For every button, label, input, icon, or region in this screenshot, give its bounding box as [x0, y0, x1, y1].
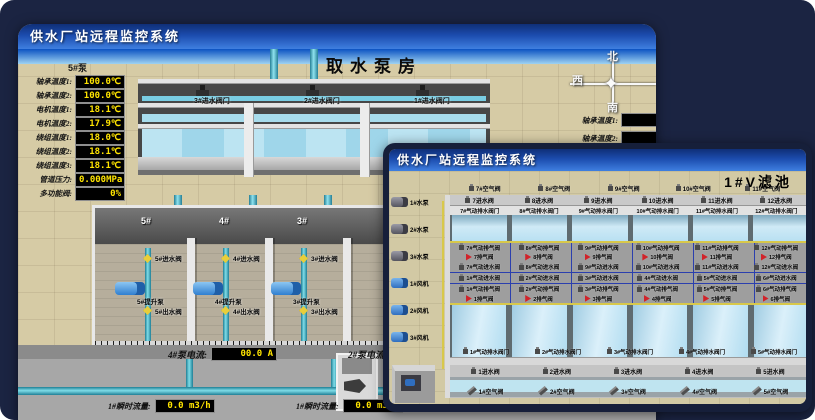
- valve-label: 10进水阀: [649, 196, 674, 205]
- inlet-valve-icon[interactable]: [584, 198, 589, 203]
- valve-label: 4#气动排水阀门: [686, 348, 725, 356]
- pump-icon: [391, 224, 408, 234]
- air-valve-row-bottom: 1#空气阀2#空气阀3#空气阀4#空气阀5#空气阀: [450, 386, 806, 397]
- device-blower[interactable]: 1#风机: [391, 278, 429, 288]
- pneumatic-inlet-valve-icon[interactable]: [697, 276, 702, 281]
- valve-label: 2#空气阀: [550, 387, 575, 396]
- valve-label: 1排气阀: [474, 295, 494, 303]
- valve-item: 5排气阀: [687, 294, 746, 303]
- lift-pump-icon[interactable]: [115, 282, 145, 295]
- drain-valve-icon[interactable]: [535, 349, 540, 354]
- inlet-valve-icon[interactable]: [685, 369, 690, 374]
- valve-item: 10#空气阀: [659, 182, 729, 194]
- valve-item: 2进水阀: [521, 365, 592, 377]
- valve-label: 10#气动排气阀: [643, 244, 680, 252]
- valve-item: 7#气动排水阀门: [450, 206, 509, 215]
- pneumatic-exhaust-valve-icon[interactable]: [637, 287, 642, 292]
- basin-wall: [138, 108, 490, 124]
- bay-number: 4#: [219, 216, 229, 226]
- pneumatic-inlet-valve-icon[interactable]: [637, 276, 642, 281]
- valve-item: 1#气动排气阀: [450, 284, 509, 294]
- valve-item: 2#气动进水阀: [509, 273, 568, 283]
- valve-item: 8#气动排气阀: [509, 243, 568, 252]
- exhaust-valve-icon[interactable]: [702, 254, 708, 261]
- blower-icon: [391, 278, 408, 288]
- valve-item: 1进水阀: [450, 365, 521, 377]
- valve-item: 10进水阀: [628, 195, 687, 206]
- filter-scene: 1#V滤池 7#空气阀8#空气阀9#空气阀10#空气阀11#空气阀12#空气阀 …: [389, 171, 806, 404]
- drain-ledge-top: 7#气动排水阀门8#气动排水阀门9#气动排水阀门10#气动排水阀门11#气动排水…: [450, 206, 806, 215]
- pump-data-row: 绕组温度1:18.0℃: [26, 131, 125, 144]
- valve-item: 10#气动排水阀门: [628, 206, 687, 215]
- valve-item: 9#空气阀: [589, 182, 659, 194]
- drain-valve-row-top: 7#气动排水阀门8#气动排水阀门9#气动排水阀门10#气动排水阀门11#气动排水…: [450, 206, 806, 215]
- pneumatic-inlet-valve-icon[interactable]: [519, 265, 524, 270]
- valve-label: 11进水阀: [708, 196, 732, 205]
- valve-item: 7#空气阀: [450, 182, 520, 194]
- intake-valve: 2#进水阀门: [304, 85, 340, 106]
- valve-item: 11排气阀: [687, 252, 746, 262]
- valve-item: 6#气动进水阀: [747, 273, 806, 283]
- air-valve-icon[interactable]: [538, 186, 543, 191]
- valve-item: 1排气阀: [450, 294, 509, 303]
- pump-data-row: 电机温度2:17.9℃: [26, 117, 125, 130]
- inlet-valve-icon[interactable]: [701, 198, 706, 203]
- pump-data-row: 轴承温度2:100.0℃: [26, 89, 125, 102]
- exhaust-row-top: 7排气阀8排气阀9排气阀10排气阀11排气阀12排气阀: [450, 252, 806, 262]
- inlet-valve-icon[interactable]: [543, 369, 548, 374]
- bay-divider: [343, 238, 351, 348]
- pump-data-row: 多功能阀:0%: [26, 187, 125, 200]
- valve-label: 12#气动进水阀: [761, 263, 798, 271]
- pump-bay: 4#进水阀4#提升泵4#出水阀: [189, 248, 261, 343]
- valve-item: 3#气动进水阀: [569, 273, 628, 283]
- air-valve-icon[interactable]: [539, 387, 548, 395]
- field-label: 2#泵电流:: [348, 348, 387, 361]
- valve-label: 8#空气阀: [545, 184, 570, 193]
- intake-valve: 3#进水阀门: [194, 85, 230, 106]
- valve-label: 1#气动排水阀门: [470, 348, 509, 356]
- valve-label: 3进水阀: [621, 367, 642, 376]
- valve-item: 8#气动排水阀门: [509, 206, 568, 215]
- pneu-exhaust-row-top: 7#气动排气阀8#气动排气阀9#气动排气阀10#气动排气阀11#气动排气阀12#…: [450, 241, 806, 252]
- valve-label: 12排气阀: [769, 253, 792, 261]
- scene-title-intake: 取水泵房: [326, 52, 422, 77]
- valve-label: 10#气动进水阀: [643, 263, 680, 271]
- compass-star-icon: ✦: [603, 73, 619, 96]
- valve-item: 6#气动排气阀: [747, 284, 806, 294]
- valve-label: 2排气阀: [533, 295, 553, 303]
- filter-cell: [753, 215, 806, 241]
- window-filter-pool: 供水厂站远程监控系统 1#V滤池 7#空气阀8#空气阀9#空气阀10#空气阀11…: [383, 143, 812, 412]
- valve-label: 9#气动排气阀: [585, 244, 619, 252]
- filter-cells-top: [450, 215, 806, 241]
- valve-item: 4#空气阀: [664, 386, 735, 397]
- valve-label: 8进水阀: [532, 196, 553, 205]
- intake-valve-icon[interactable]: [420, 85, 425, 96]
- device-label: 1#风机: [410, 279, 429, 288]
- filter-cell: [633, 215, 688, 241]
- pneumatic-inlet-valve-icon[interactable]: [578, 276, 583, 281]
- valve-item: 12#气动排气阀: [747, 243, 806, 252]
- valve-item: 11#气动排水阀门: [687, 206, 746, 215]
- front-window-titlebar[interactable]: 供水厂站远程监控系统: [389, 149, 806, 171]
- valve-label: 4#气动进水阀: [644, 274, 678, 282]
- exhaust-valve-icon[interactable]: [585, 254, 591, 261]
- valve-item: 4排气阀: [628, 294, 687, 303]
- intake-valve: 1#进水阀门: [414, 85, 450, 106]
- exhaust-valve-icon[interactable]: [585, 295, 591, 302]
- valve-item: 4#气动排气阀: [628, 284, 687, 294]
- device-label: 1#水泵: [410, 198, 429, 207]
- air-valve-icon[interactable]: [753, 387, 762, 395]
- pneumatic-exhaust-valve-icon[interactable]: [697, 287, 702, 292]
- field-label: 轴承温度1:: [26, 76, 72, 87]
- filter-cell: [512, 215, 567, 241]
- inlet-valve-icon[interactable]: [525, 198, 530, 203]
- pneumatic-exhaust-valve-icon[interactable]: [459, 287, 464, 292]
- pneumatic-inlet-valve-icon[interactable]: [695, 265, 700, 270]
- pneu-exhaust-row-bottom: 1#气动排气阀2#气动排气阀3#气动排气阀4#气动排气阀5#气动排气阀6#气动排…: [450, 284, 806, 294]
- scada-desktop: 供水厂站远程监控系统 取水泵房 5#泵 轴承温度1:100.0℃轴承温度2:10…: [0, 0, 815, 420]
- exhaust-valve-icon[interactable]: [525, 295, 531, 302]
- front-window-body: 供水厂站远程监控系统 1#V滤池 7#空气阀8#空气阀9#空气阀10#空气阀11…: [389, 149, 806, 404]
- valve-label: 8#气动排气阀: [526, 244, 560, 252]
- bay-inlet-label: 3#进水阀: [311, 253, 338, 263]
- air-valve-icon[interactable]: [468, 387, 477, 395]
- valve-item: 6排气阀: [747, 294, 806, 303]
- valve-item: 10排气阀: [628, 252, 687, 262]
- valve-item: 7#气动排气阀: [450, 243, 509, 252]
- valve-label: 9进水阀: [591, 196, 612, 205]
- bay-outlet-label: 4#出水阀: [233, 306, 260, 316]
- valve-item: 10#气动进水阀: [628, 262, 687, 272]
- valve-label: 12进水阀: [767, 196, 792, 205]
- valve-label: 9排气阀: [593, 253, 613, 261]
- inlet-wall-top: 7进水阀8进水阀9进水阀10进水阀11进水阀12进水阀: [450, 195, 806, 206]
- pneumatic-inlet-valve-icon[interactable]: [578, 265, 583, 270]
- pneumatic-exhaust-valve-icon[interactable]: [578, 287, 583, 292]
- valve-item: 9进水阀: [569, 195, 628, 206]
- intake-valve-icon[interactable]: [310, 85, 315, 96]
- valve-item: 2#气动排水阀门: [522, 347, 594, 356]
- drain-valve-icon[interactable]: [679, 349, 684, 354]
- valve-item: 3排气阀: [569, 294, 628, 303]
- pneumatic-inlet-valve-icon[interactable]: [459, 276, 464, 281]
- lift-pump-icon[interactable]: [193, 282, 223, 295]
- pump-icon: [391, 251, 408, 261]
- pump5-caption: 5#泵: [68, 61, 87, 74]
- front-window-title: 供水厂站远程监控系统: [397, 153, 537, 167]
- valve-label: 9#气动进水阀: [585, 263, 619, 271]
- exhaust-valve-icon[interactable]: [761, 254, 767, 261]
- bay-number: 5#: [141, 216, 151, 226]
- pneumatic-exhaust-valve-icon[interactable]: [459, 245, 464, 250]
- valve-label: 9#空气阀: [615, 184, 640, 193]
- device-blower[interactable]: 2#风机: [391, 305, 429, 315]
- device-blower[interactable]: 3#风机: [391, 332, 429, 342]
- valve-item: 4进水阀: [664, 365, 735, 377]
- valve-label: 6#气动排气阀: [763, 285, 797, 293]
- intake-valve-label: 2#进水阀门: [304, 96, 340, 106]
- valve-item: 1#气动进水阀: [450, 273, 509, 283]
- field-label: 4#泵电流:: [168, 348, 207, 361]
- pneumatic-inlet-valve-icon[interactable]: [519, 276, 524, 281]
- device-label: 3#风机: [410, 333, 429, 342]
- valve-label: 7#气动排水阀门: [460, 207, 499, 215]
- field-label: 轴承温度2:: [574, 133, 618, 144]
- basin-divider: [360, 103, 369, 177]
- valve-item: 12#气动排水阀门: [747, 206, 806, 215]
- drain-valve-icon[interactable]: [751, 349, 756, 354]
- field-label: 管道压力:: [26, 174, 72, 185]
- basin-divider: [244, 103, 253, 177]
- valve-label: 3排气阀: [593, 295, 613, 303]
- inlet-valve-icon[interactable]: [614, 369, 619, 374]
- inlet-valve-icon[interactable]: [465, 198, 470, 203]
- valve-label: 11#气动排水阀门: [696, 207, 738, 215]
- valve-item: 12排气阀: [747, 252, 806, 262]
- field-value: 17.9℃: [75, 117, 125, 131]
- pneumatic-inlet-valve-icon[interactable]: [636, 265, 641, 270]
- valve-label: 8排气阀: [533, 253, 553, 261]
- pneumatic-exhaust-valve-icon[interactable]: [519, 287, 524, 292]
- valve-item: 2#气动排气阀: [509, 284, 568, 294]
- valve-label: 4进水阀: [692, 367, 713, 376]
- bay-number: 3#: [297, 216, 307, 226]
- back-window-titlebar[interactable]: 供水厂站远程监控系统: [18, 24, 656, 49]
- drain-valve-icon[interactable]: [463, 349, 468, 354]
- pump-bay: 5#进水阀5#提升泵5#出水阀: [111, 248, 183, 343]
- field-value: 00.0 A: [211, 347, 277, 361]
- pump-data-row: 轴承温度1:100.0℃: [26, 75, 125, 88]
- valve-label: 3#空气阀: [621, 387, 646, 396]
- air-valve-icon[interactable]: [608, 186, 613, 191]
- pneumatic-inlet-valve-icon[interactable]: [756, 276, 761, 281]
- field-value: 0%: [75, 187, 125, 201]
- filter-cells-bottom: 1#气动排水阀门2#气动排水阀门3#气动排水阀门4#气动排水阀门5#气动排水阀门: [450, 305, 806, 357]
- exhaust-valve-icon[interactable]: [763, 295, 769, 302]
- field-label: 电机温度1:: [26, 104, 72, 115]
- valve-label: 3#气动进水阀: [585, 274, 619, 282]
- field-value: 18.1℃: [75, 103, 125, 117]
- valve-item: 12#气动进水阀: [747, 262, 806, 272]
- compass-north: 北: [607, 49, 618, 64]
- valve-label: 6#气动进水阀: [763, 274, 797, 282]
- pump-data-row: 电机温度1:18.1℃: [26, 103, 125, 116]
- valve-label: 8#气动进水阀: [526, 263, 560, 271]
- valve-label: 2#气动排水阀门: [542, 348, 581, 356]
- valve-label: 7排气阀: [474, 253, 494, 261]
- filter-platform: 7进水阀8进水阀9进水阀10进水阀11进水阀12进水阀 7#气动排水阀门8#气动…: [445, 195, 806, 398]
- drain-valve-row-bottom: 1#气动排水阀门2#气动排水阀门3#气动排水阀门4#气动排水阀门5#气动排水阀门: [450, 347, 806, 356]
- valve-item: 5进水阀: [735, 365, 806, 377]
- valve-label: 10排气阀: [650, 253, 673, 261]
- valve-label: 3#气动排气阀: [585, 285, 619, 293]
- valve-label: 11排气阀: [710, 253, 732, 261]
- field-label: 多功能阀:: [26, 188, 72, 199]
- device-label: 2#水泵: [410, 225, 429, 234]
- pneumatic-inlet-valve-icon[interactable]: [459, 265, 464, 270]
- valve-label: 12#气动排水阀门: [755, 207, 797, 215]
- valve-item: 1#气动排水阀门: [450, 347, 522, 356]
- exhaust-valve-icon[interactable]: [642, 254, 648, 261]
- valve-label: 1进水阀: [478, 367, 499, 376]
- blower-house[interactable]: [392, 365, 435, 403]
- field-label: 轴承温度1:: [574, 115, 618, 126]
- valve-label: 5进水阀: [763, 367, 784, 376]
- valve-label: 7#气动排气阀: [466, 244, 500, 252]
- valve-item: 12#空气阀: [798, 182, 807, 194]
- field-value: 0.000MPa: [75, 173, 125, 187]
- field-value: 18.1℃: [75, 145, 125, 159]
- valve-label: 10#空气阀: [683, 184, 711, 193]
- valve-item: 9#气动排气阀: [569, 243, 628, 252]
- valve-label: 10#气动排水阀门: [637, 207, 679, 215]
- exhaust-row-bottom: 1排气阀2排气阀3排气阀4排气阀5排气阀6排气阀: [450, 294, 806, 305]
- valve-item: 5#气动进水阀: [687, 273, 746, 283]
- valve-item: 4#气动排水阀门: [666, 347, 738, 356]
- field-label: 1#瞬时流量:: [108, 401, 151, 412]
- field-label: 绕组温度1:: [26, 132, 72, 143]
- valve-item: 3#空气阀: [592, 386, 663, 397]
- valve-item: 12进水阀: [747, 195, 806, 206]
- device-wash-pump[interactable]: 2#水泵: [391, 224, 429, 234]
- blower-icon: [391, 332, 408, 342]
- pneumatic-exhaust-valve-icon[interactable]: [695, 245, 700, 250]
- valve-item: 4#气动进水阀: [628, 273, 687, 283]
- air-valve-icon[interactable]: [469, 186, 474, 191]
- pneumatic-exhaust-valve-icon[interactable]: [636, 245, 641, 250]
- bay-inlet-label: 4#进水阀: [233, 253, 260, 263]
- valve-item: 3#气动排水阀门: [594, 347, 666, 356]
- bay-pump-label: 3#提升泵: [293, 296, 320, 306]
- air-valve-icon[interactable]: [676, 186, 681, 191]
- filter-cell: [452, 215, 507, 241]
- valve-item: 8排气阀: [509, 252, 568, 262]
- intake-valve-icon[interactable]: [200, 85, 205, 96]
- inlet-valve-icon[interactable]: [760, 198, 765, 203]
- valve-item: 2#空气阀: [521, 386, 592, 397]
- pneumatic-inlet-valve-icon[interactable]: [754, 265, 759, 270]
- flow-readout: 1#瞬时流量: 0.0 m3/h: [108, 399, 215, 413]
- device-wash-pump[interactable]: 3#水泵: [391, 251, 429, 261]
- bay-inlet-label: 5#进水阀: [155, 253, 182, 263]
- valve-item: 5#气动排水阀门: [738, 347, 806, 356]
- valve-item: 7#气动进水阀: [450, 262, 509, 272]
- valve-label: 5#气动进水阀: [704, 274, 738, 282]
- field-label: 绕组温度3:: [26, 160, 72, 171]
- intake-valve-label: 1#进水阀门: [414, 96, 450, 106]
- lift-pump-icon[interactable]: [271, 282, 301, 295]
- valve-label: 5#气动排气阀: [704, 285, 738, 293]
- valve-label: 3#气动排水阀门: [614, 348, 653, 356]
- front-ledge: [450, 357, 806, 365]
- valve-label: 1#气动排气阀: [466, 285, 500, 293]
- field-value: 100.0℃: [75, 89, 125, 103]
- pump-data-row: 绕组温度3:18.1℃: [26, 159, 125, 172]
- inlet-valve-icon[interactable]: [471, 369, 476, 374]
- valve-label: 12#气动排气阀: [761, 244, 798, 252]
- valve-label: 2进水阀: [550, 367, 571, 376]
- filter-cell: [572, 215, 627, 241]
- pump-data-row: 绕组温度2:18.1℃: [26, 145, 125, 158]
- pump-bay: 3#进水阀3#提升泵3#出水阀: [267, 248, 339, 343]
- valve-item: 11#气动进水阀: [687, 262, 746, 272]
- exhaust-valve-icon[interactable]: [466, 254, 472, 261]
- outer-channel: 1#空气阀2#空气阀3#空气阀4#空气阀5#空气阀: [450, 377, 806, 397]
- valve-item: 2排气阀: [509, 294, 568, 303]
- blower-icon: [391, 305, 408, 315]
- pipe-gallery: 7#气动排气阀8#气动排气阀9#气动排气阀10#气动排气阀11#气动排气阀12#…: [450, 241, 806, 305]
- current-readout: 4#泵电流: 00.0 A: [168, 347, 277, 361]
- inlet-wall-bottom: 1进水阀2进水阀3进水阀4进水阀5进水阀: [450, 365, 806, 377]
- pneumatic-exhaust-valve-icon[interactable]: [578, 245, 583, 250]
- valve-label: 11#气动排气阀: [702, 244, 738, 252]
- pneu-inlet-row-top: 7#气动进水阀8#气动进水阀9#气动进水阀10#气动进水阀11#气动进水阀12#…: [450, 262, 806, 273]
- valve-item: 11进水阀: [687, 195, 746, 206]
- bay-pump-label: 4#提升泵: [215, 296, 242, 306]
- valve-label: 8#气动排水阀门: [519, 207, 558, 215]
- valve-item: 9#气动进水阀: [569, 262, 628, 272]
- scene-title-filter: 1#V滤池: [724, 172, 792, 192]
- valve-label: 5#气动排水阀门: [758, 348, 797, 356]
- valve-item: 5#气动排气阀: [687, 284, 746, 294]
- filter-cell: [693, 215, 748, 241]
- exhaust-valve-icon[interactable]: [644, 295, 650, 302]
- valve-label: 4#空气阀: [692, 387, 717, 396]
- valve-item: 1#空气阀: [450, 386, 521, 397]
- valve-label: 1#气动进水阀: [466, 274, 500, 282]
- valve-label: 4排气阀: [652, 295, 672, 303]
- drain-valve-icon[interactable]: [607, 349, 612, 354]
- pump-icon: [391, 197, 408, 207]
- air-valve-icon[interactable]: [610, 387, 619, 395]
- back-window-title: 供水厂站远程监控系统: [30, 29, 180, 44]
- valve-item: 9#气动排水阀门: [569, 206, 628, 215]
- inlet-valve-icon[interactable]: [642, 198, 647, 203]
- field-value: 0.0 m3/h: [155, 399, 215, 413]
- pneumatic-exhaust-valve-icon[interactable]: [519, 245, 524, 250]
- inlet-valve-icon[interactable]: [756, 369, 761, 374]
- valve-label: 7#空气阀: [476, 184, 501, 193]
- field-value: [621, 113, 656, 127]
- compass: ✦ 北 西 南: [570, 51, 656, 117]
- valve-label: 1#空气阀: [479, 387, 504, 396]
- inlet-valve-row-top: 7进水阀8进水阀9进水阀10进水阀11进水阀12进水阀: [450, 195, 806, 206]
- riser-pipe: [310, 49, 318, 79]
- field-label: 电机温度2:: [26, 118, 72, 129]
- exhaust-valve-icon[interactable]: [703, 295, 709, 302]
- valve-label: 9#气动排水阀门: [579, 207, 618, 215]
- air-valve-icon[interactable]: [681, 387, 690, 395]
- exhaust-valve-icon[interactable]: [466, 295, 472, 302]
- field-value: 18.0℃: [75, 131, 125, 145]
- riser-pipe: [270, 49, 278, 79]
- valve-item: 8#气动进水阀: [509, 262, 568, 272]
- field-label: 轴承温度2:: [26, 90, 72, 101]
- valve-label: 6排气阀: [771, 295, 791, 303]
- pneumatic-exhaust-valve-icon[interactable]: [756, 287, 761, 292]
- valve-label: 2#气动进水阀: [526, 274, 560, 282]
- device-wash-pump[interactable]: 1#水泵: [391, 197, 429, 207]
- field-label: 1#瞬时流量:: [296, 401, 339, 412]
- exhaust-valve-icon[interactable]: [525, 254, 531, 261]
- valve-label: 4#气动排气阀: [644, 285, 678, 293]
- valve-item: 8进水阀: [509, 195, 568, 206]
- valve-label: 5#空气阀: [764, 387, 789, 396]
- pneumatic-exhaust-valve-icon[interactable]: [754, 245, 759, 250]
